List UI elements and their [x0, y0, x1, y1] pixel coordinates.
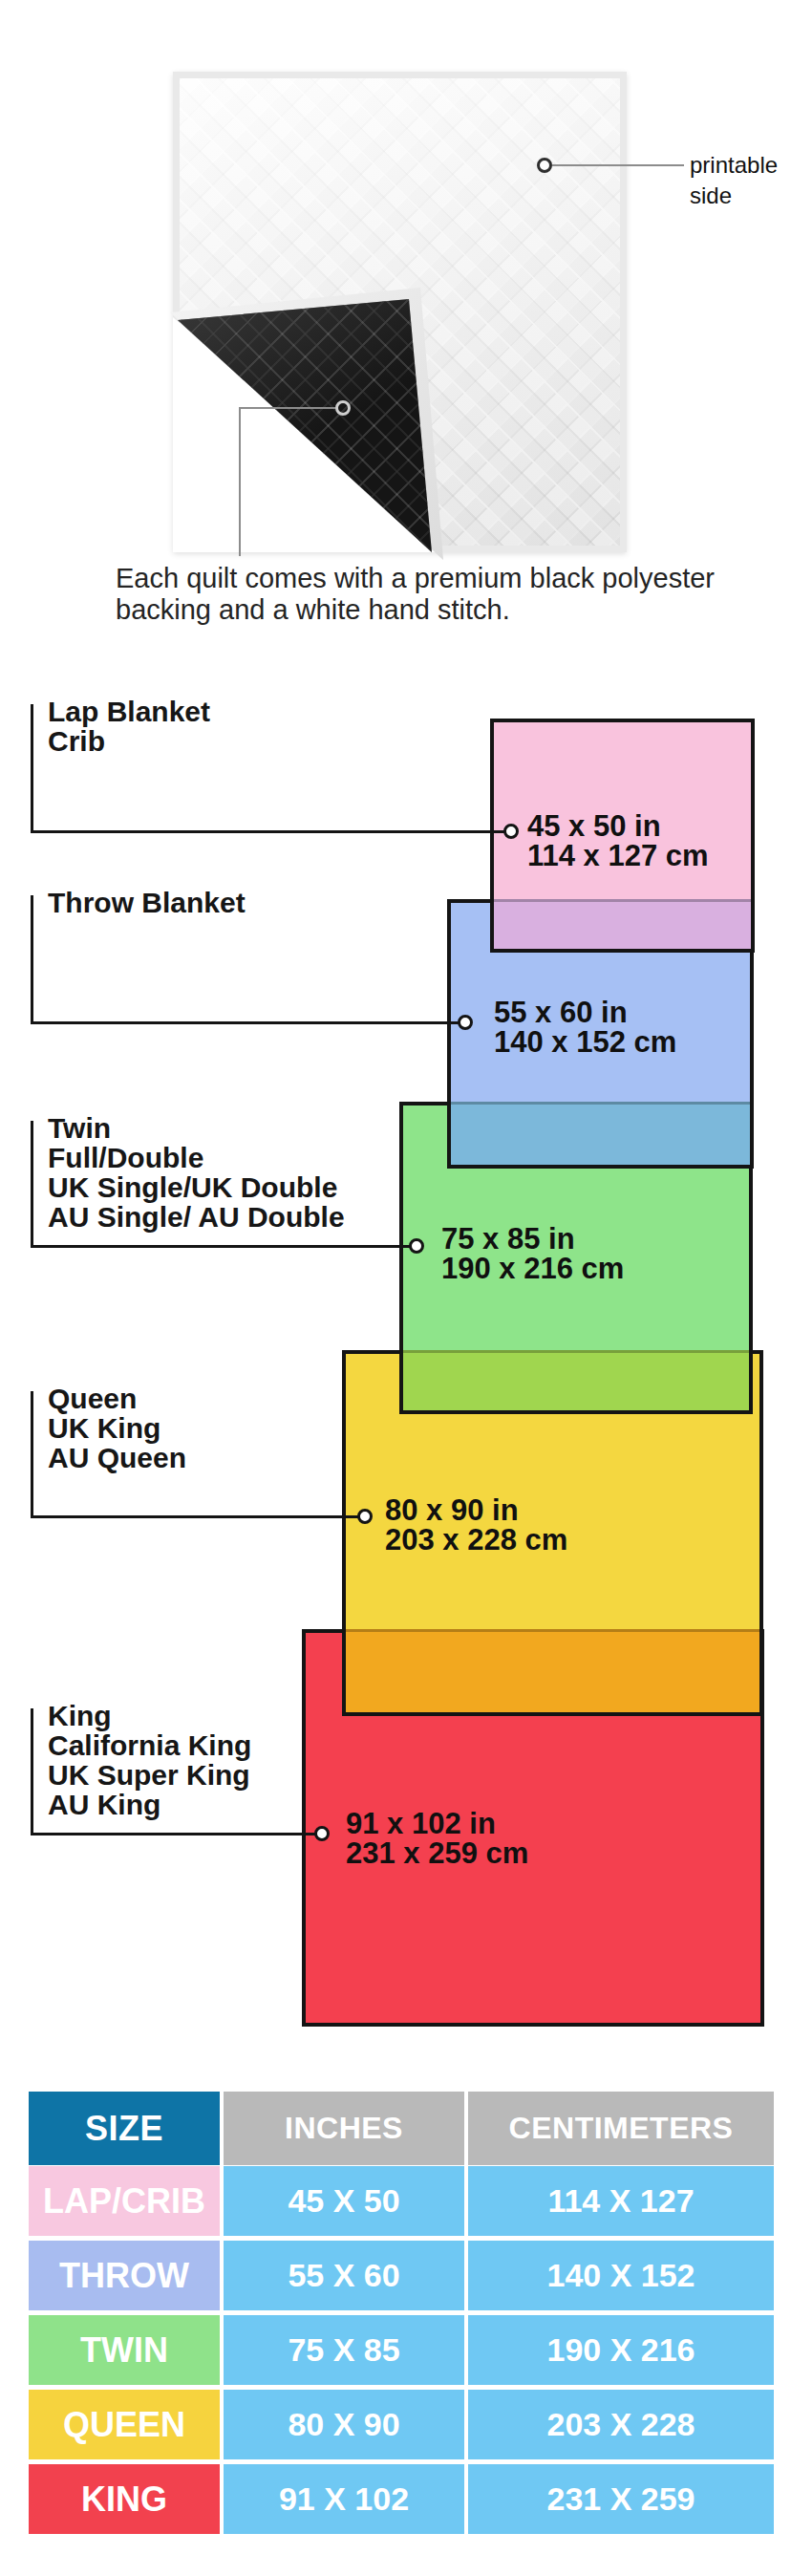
quilt-size-infographic: printable side Each quilt comes with a p… — [0, 0, 791, 2576]
table-row-label-queen: QUEEN — [29, 2390, 220, 2459]
callout-dot-queen — [357, 1509, 373, 1524]
table-cell-inches: 75 X 85 — [224, 2315, 464, 2385]
table-header-inches: INCHES — [224, 2092, 464, 2165]
overlap-region-twin — [403, 1350, 749, 1410]
table-header-centimeters: CENTIMETERS — [468, 2092, 774, 2165]
size-label-king: King California King UK Super King AU Ki… — [48, 1701, 251, 1819]
bracket-vline-lap-crib — [31, 704, 33, 831]
table-header-size: SIZE — [29, 2092, 220, 2165]
bracket-hline-queen — [31, 1515, 359, 1518]
table-row-label-lap-crib: LAP/CRIB — [29, 2166, 220, 2236]
size-label-throw: Throw Blanket — [48, 888, 246, 917]
callout-dot-throw — [458, 1015, 473, 1030]
bracket-hline-king — [31, 1833, 316, 1835]
size-label-twin: Twin Full/Double UK Single/UK Double AU … — [48, 1113, 345, 1232]
table-cell-inches: 80 X 90 — [224, 2390, 464, 2459]
table-row-label-throw: THROW — [29, 2241, 220, 2310]
bracket-vline-twin — [31, 1121, 33, 1246]
callout-dot-twin — [409, 1238, 424, 1254]
overlap-region-queen — [346, 1629, 759, 1712]
table-row-label-king: KING — [29, 2464, 220, 2534]
overlap-region-lap-crib — [494, 899, 751, 949]
size-label-lap-crib: Lap Blanket Crib — [48, 697, 210, 756]
bracket-vline-throw — [31, 895, 33, 1022]
backing-marker-icon — [335, 400, 351, 416]
table-cell-cm: 114 X 127 — [468, 2166, 774, 2236]
size-text-throw: 55 x 60 in 140 x 152 cm — [494, 998, 676, 1057]
table-cell-cm: 140 X 152 — [468, 2241, 774, 2310]
quilt-caption: Each quilt comes with a premium black po… — [116, 563, 746, 626]
table-cell-cm: 203 X 228 — [468, 2390, 774, 2459]
bracket-hline-lap-crib — [31, 830, 505, 833]
table-cell-cm: 231 X 259 — [468, 2464, 774, 2534]
callout-dot-lap-crib — [503, 824, 519, 839]
printable-side-label: printable side — [690, 150, 778, 211]
size-label-queen: Queen UK King AU Queen — [48, 1384, 186, 1472]
size-text-lap-crib: 45 x 50 in 114 x 127 cm — [527, 811, 709, 870]
backing-callout-line-h — [239, 407, 335, 409]
bracket-hline-throw — [31, 1021, 460, 1024]
printable-side-callout-line — [552, 164, 684, 166]
printable-side-marker-icon — [537, 158, 552, 173]
overlap-region-throw — [451, 1102, 750, 1165]
size-text-queen: 80 x 90 in 203 x 228 cm — [385, 1495, 567, 1555]
caption-line1: Each quilt comes with a premium black po… — [116, 563, 715, 593]
caption-line2: backing and a white hand stitch. — [116, 594, 510, 625]
size-table: SIZEINCHESCENTIMETERSLAP/CRIB45 X 50114 … — [29, 2092, 774, 2534]
callout-dot-king — [314, 1826, 330, 1841]
table-cell-inches: 45 X 50 — [224, 2166, 464, 2236]
printable-side-label-line2: side — [690, 181, 778, 211]
table-cell-cm: 190 X 216 — [468, 2315, 774, 2385]
bracket-vline-queen — [31, 1391, 33, 1516]
bracket-hline-twin — [31, 1245, 411, 1248]
size-text-twin: 75 x 85 in 190 x 216 cm — [441, 1224, 624, 1283]
table-cell-inches: 91 X 102 — [224, 2464, 464, 2534]
size-text-king: 91 x 102 in 231 x 259 cm — [346, 1809, 528, 1868]
printable-side-label-line1: printable — [690, 150, 778, 181]
table-cell-inches: 55 X 60 — [224, 2241, 464, 2310]
backing-callout-line-v — [239, 407, 241, 556]
table-row-label-twin: TWIN — [29, 2315, 220, 2385]
bracket-vline-king — [31, 1708, 33, 1834]
